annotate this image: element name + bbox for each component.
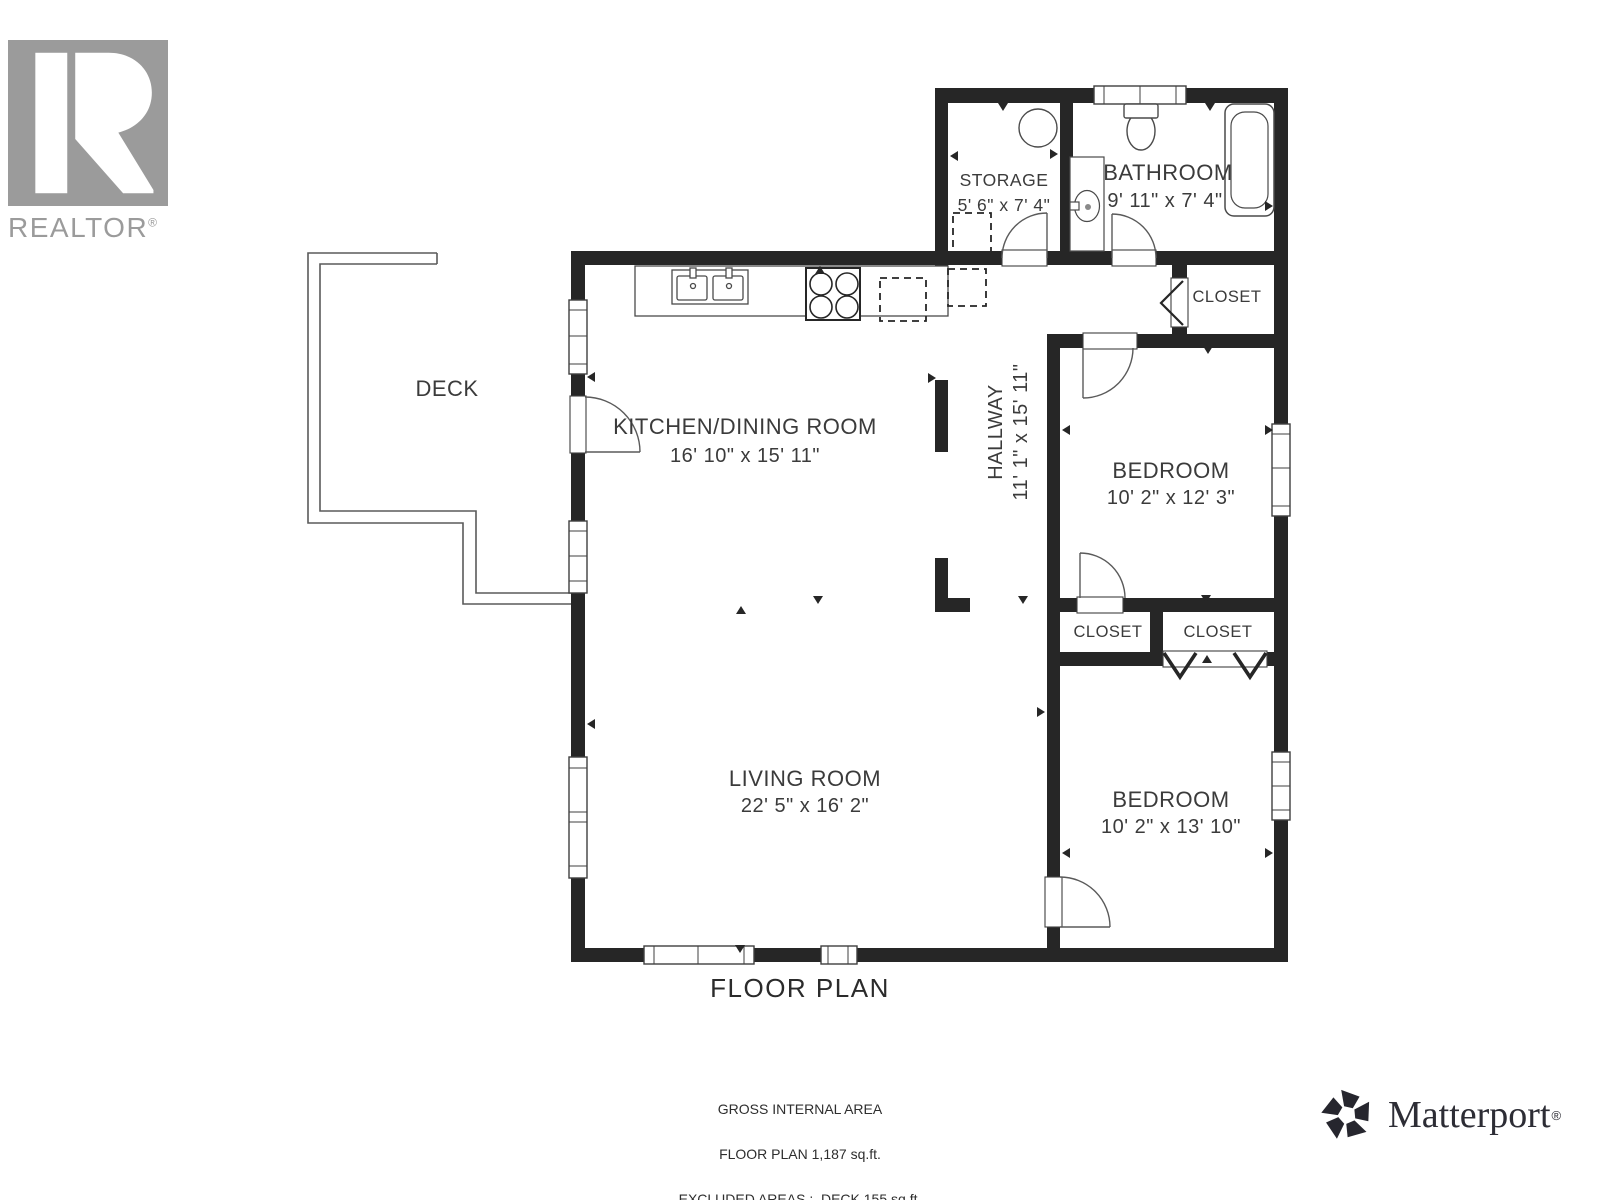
toilet <box>1124 104 1158 150</box>
bedroom2-label: BEDROOM <box>1112 787 1229 812</box>
bedroom1-closet-door-swing <box>1080 553 1125 598</box>
kitchen-label: KITCHEN/DINING ROOM <box>613 414 877 439</box>
bedroom1-window <box>1272 424 1290 516</box>
deck-door-opening <box>570 396 586 453</box>
living-room-dims: 22' 5" x 16' 2" <box>741 795 869 817</box>
storage-label: STORAGE <box>960 170 1049 190</box>
stove <box>806 268 860 320</box>
door-swings <box>585 213 1156 927</box>
bedroom1-dims: 10' 2" x 12' 3" <box>1107 487 1235 509</box>
living-window-south2 <box>821 946 857 964</box>
bedroom1-door-opening <box>1083 333 1137 349</box>
water-heater <box>1019 109 1057 147</box>
kitchen-window <box>569 300 587 374</box>
hallway-label: HALLWAY <box>985 384 1007 479</box>
deck-outline <box>308 253 571 604</box>
summary-floor-plan-area: FLOOR PLAN 1,187 sq.ft. <box>400 1147 1200 1162</box>
matterport-logo: Matterport ® <box>1318 1086 1561 1144</box>
hallway-dims: 11' 1" x 15' 11" <box>1010 364 1032 501</box>
closet-left-label: CLOSET <box>1073 623 1142 641</box>
bedroom1-door-swing <box>1083 348 1133 398</box>
bedroom2-door-opening <box>1045 877 1062 927</box>
matterport-pinwheel-icon <box>1318 1086 1376 1144</box>
closet-right-label: CLOSET <box>1183 623 1252 641</box>
living-room-label: LIVING ROOM <box>729 766 881 791</box>
matterport-reg-mark: ® <box>1552 1108 1562 1123</box>
deck-label: DECK <box>415 376 478 401</box>
summary-excluded-areas: EXCLUDED AREAS : DECK 155 sq.ft. <box>400 1192 1200 1200</box>
bedroom2-dims: 10' 2" x 13' 10" <box>1101 816 1241 838</box>
bedroom1-closet-door-opening <box>1077 597 1123 613</box>
floor-plan-drawing: STORAGE 5' 6" x 7' 4" BATHROOM 9' 11" x … <box>0 0 1600 1200</box>
appliance-dashed-3 <box>953 213 991 252</box>
vanity-sink <box>1070 157 1104 251</box>
summary-gross-area: GROSS INTERNAL AREA <box>400 1102 1200 1117</box>
bifold-closet-opening <box>1163 651 1267 667</box>
storage-door-opening <box>1002 250 1047 266</box>
dining-window <box>569 521 587 593</box>
bathroom-dims: 9' 11" x 7' 4" <box>1107 190 1222 212</box>
bedroom2-door-swing <box>1060 877 1110 927</box>
matterport-wordmark: Matterport <box>1388 1093 1551 1137</box>
plan-title: FLOOR PLAN <box>710 973 890 1003</box>
storage-dims: 5' 6" x 7' 4" <box>958 195 1051 215</box>
bathroom-door-opening <box>1112 250 1156 266</box>
kitchen-dims: 16' 10" x 15' 11" <box>670 445 820 467</box>
bathroom-label: BATHROOM <box>1103 160 1232 185</box>
living-window-west <box>569 757 587 878</box>
floorplan-page: REALTOR® <box>0 0 1600 1200</box>
area-summary: GROSS INTERNAL AREA FLOOR PLAN 1,187 sq.… <box>400 1072 1200 1200</box>
bedroom1-label: BEDROOM <box>1112 458 1229 483</box>
appliance-dashed-2 <box>948 269 986 306</box>
kitchen-sink <box>672 268 748 304</box>
closet-top-label: CLOSET <box>1192 288 1261 306</box>
